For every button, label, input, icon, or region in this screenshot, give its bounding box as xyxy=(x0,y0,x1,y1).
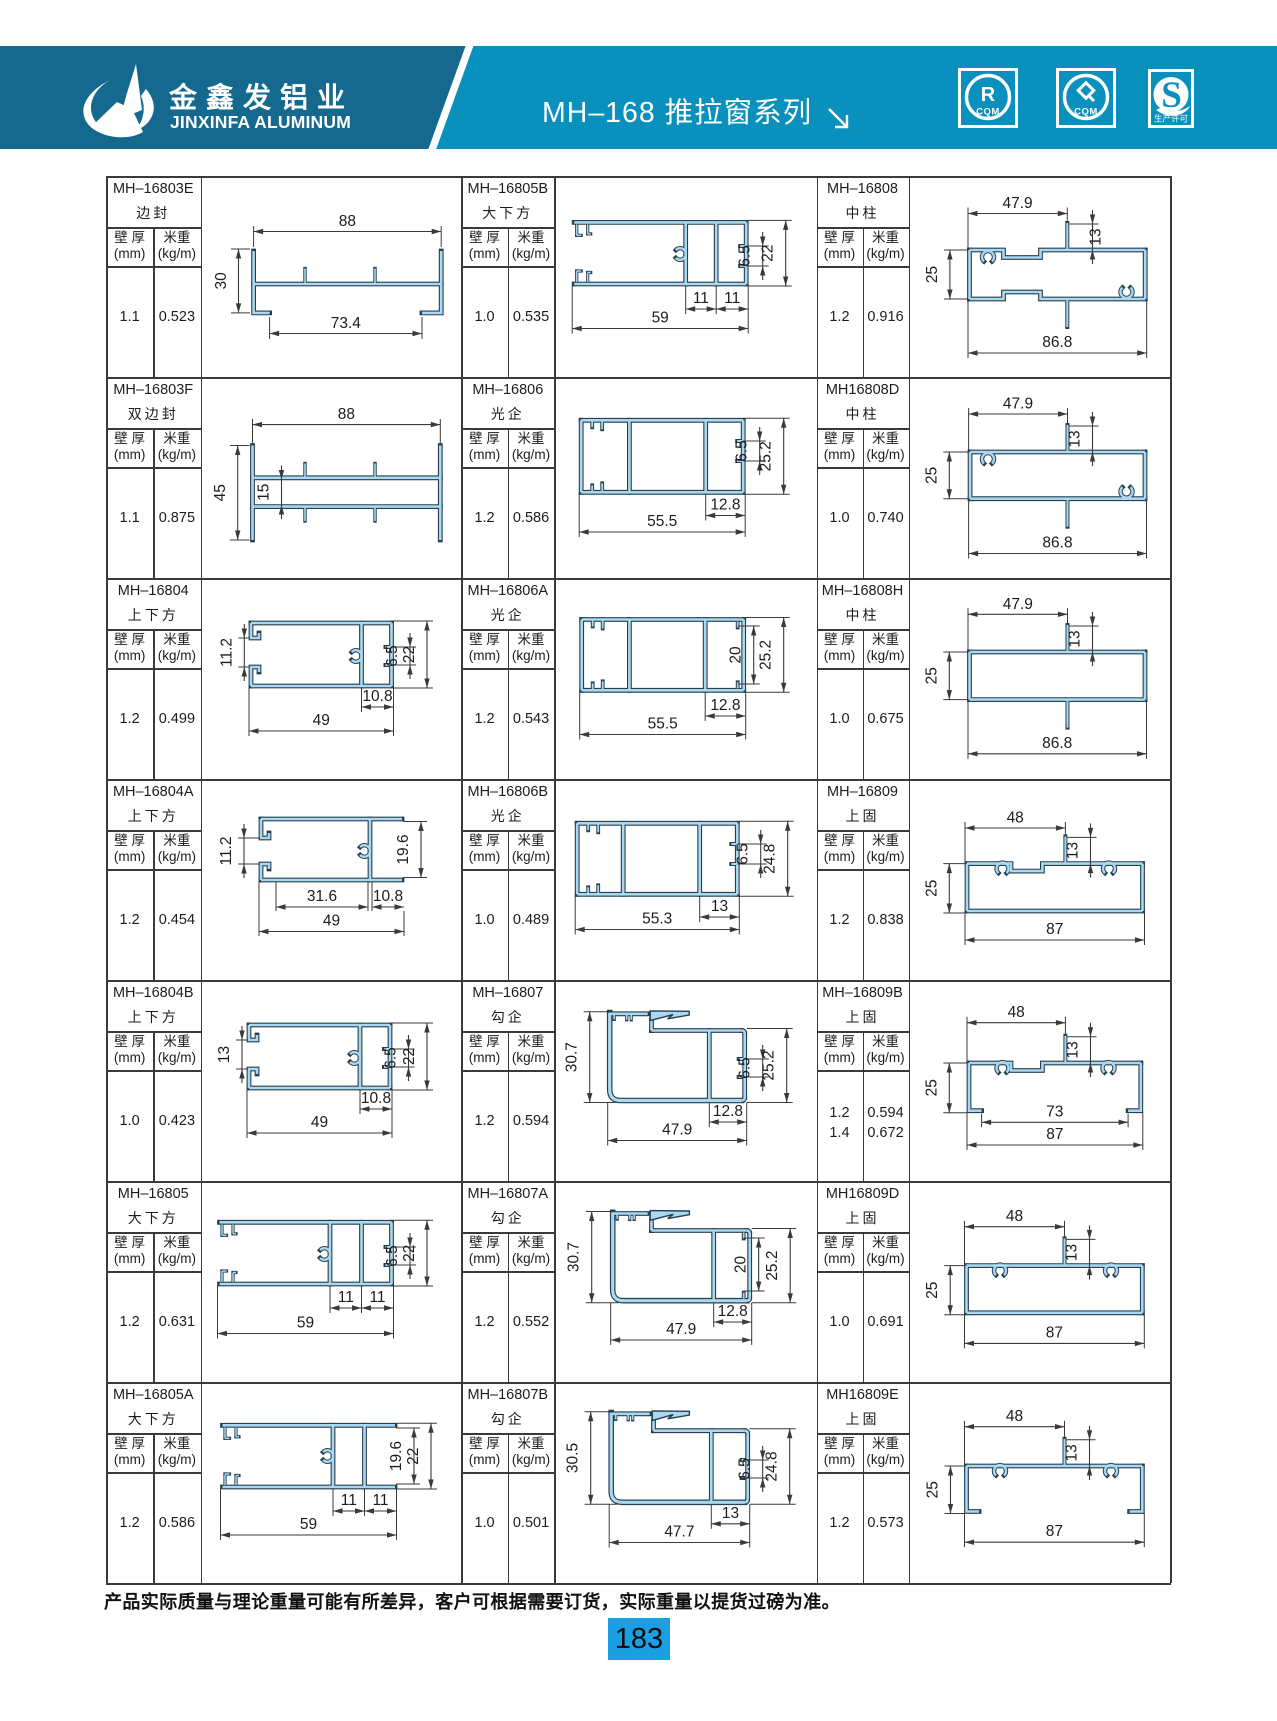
svg-text:87: 87 xyxy=(1045,1523,1062,1540)
svg-text:22: 22 xyxy=(401,646,418,663)
svg-text:6.5: 6.5 xyxy=(734,440,751,462)
svg-text:22: 22 xyxy=(760,245,777,262)
svg-text:11.2: 11.2 xyxy=(218,638,235,667)
svg-text:R: R xyxy=(981,84,996,106)
svg-text:30.7: 30.7 xyxy=(566,1242,583,1272)
svg-text:88: 88 xyxy=(338,406,355,423)
svg-text:47.9: 47.9 xyxy=(1002,195,1032,212)
svg-text:6.5: 6.5 xyxy=(737,1458,754,1480)
svg-text:30.5: 30.5 xyxy=(565,1443,582,1473)
svg-text:55.3: 55.3 xyxy=(642,910,672,927)
svg-text:48: 48 xyxy=(1006,810,1023,827)
svg-text:11: 11 xyxy=(372,1492,388,1509)
svg-text:47.9: 47.9 xyxy=(666,1321,696,1338)
svg-text:生产许可: 生产许可 xyxy=(1154,114,1189,124)
svg-text:59: 59 xyxy=(297,1314,314,1331)
svg-text:30: 30 xyxy=(213,272,230,289)
svg-text:47.7: 47.7 xyxy=(665,1523,695,1540)
svg-text:12.8: 12.8 xyxy=(713,1103,743,1120)
svg-text:25.2: 25.2 xyxy=(761,1050,778,1080)
svg-text:CQM: CQM xyxy=(976,107,1000,118)
svg-text:6.5: 6.5 xyxy=(737,1057,754,1079)
svg-text:24.8: 24.8 xyxy=(762,844,779,874)
svg-text:13: 13 xyxy=(216,1046,233,1063)
svg-text:22: 22 xyxy=(401,1048,418,1065)
svg-text:19.6: 19.6 xyxy=(395,834,412,864)
svg-text:13: 13 xyxy=(711,898,728,915)
svg-text:55.5: 55.5 xyxy=(648,715,678,732)
svg-text:48: 48 xyxy=(1005,1208,1022,1225)
svg-text:73.4: 73.4 xyxy=(331,315,362,332)
svg-text:13: 13 xyxy=(1063,1444,1080,1461)
svg-text:15: 15 xyxy=(255,484,272,501)
svg-text:13: 13 xyxy=(1066,630,1083,647)
svg-text:59: 59 xyxy=(300,1516,317,1533)
svg-text:25: 25 xyxy=(924,1481,941,1498)
svg-text:金鑫发铝业: 金鑫发铝业 xyxy=(168,81,354,113)
svg-text:12.8: 12.8 xyxy=(718,1303,748,1320)
svg-text:11.2: 11.2 xyxy=(218,837,235,866)
svg-text:22: 22 xyxy=(405,1448,422,1465)
svg-text:30.7: 30.7 xyxy=(564,1042,581,1072)
svg-text:25: 25 xyxy=(924,1282,941,1299)
svg-text:48: 48 xyxy=(1007,1004,1024,1021)
svg-text:13: 13 xyxy=(1064,842,1081,859)
svg-text:25.2: 25.2 xyxy=(764,1251,781,1281)
svg-text:10.8: 10.8 xyxy=(362,688,392,705)
svg-text:25: 25 xyxy=(923,1079,940,1096)
svg-text:6.5: 6.5 xyxy=(735,843,752,865)
svg-text:45: 45 xyxy=(212,484,229,501)
svg-text:6.5: 6.5 xyxy=(382,1047,399,1069)
svg-text:86.8: 86.8 xyxy=(1042,735,1072,752)
svg-text:87: 87 xyxy=(1046,1126,1063,1143)
svg-text:47.9: 47.9 xyxy=(1002,596,1032,613)
svg-text:11: 11 xyxy=(341,1492,357,1509)
svg-text:25: 25 xyxy=(923,880,940,897)
svg-text:24.8: 24.8 xyxy=(764,1451,781,1481)
svg-text:11: 11 xyxy=(693,290,709,307)
svg-text:49: 49 xyxy=(313,712,330,729)
svg-text:88: 88 xyxy=(339,213,356,230)
svg-text:6.5: 6.5 xyxy=(384,645,401,667)
svg-text:19.6: 19.6 xyxy=(388,1441,405,1471)
svg-text:6.5: 6.5 xyxy=(737,245,754,267)
svg-text:CQM: CQM xyxy=(1074,107,1098,118)
svg-text:6.5: 6.5 xyxy=(384,1245,401,1267)
svg-text:13: 13 xyxy=(1087,228,1104,245)
svg-text:22: 22 xyxy=(401,1245,418,1262)
svg-text:MH–168 推拉窗系列: MH–168 推拉窗系列 xyxy=(542,97,812,129)
svg-text:59: 59 xyxy=(652,309,669,326)
svg-text:12.8: 12.8 xyxy=(711,496,741,513)
svg-text:JINXINFA ALUMINUM: JINXINFA ALUMINUM xyxy=(170,112,351,132)
svg-text:73: 73 xyxy=(1046,1103,1063,1120)
svg-text:11: 11 xyxy=(724,290,740,307)
svg-text:47.9: 47.9 xyxy=(662,1121,692,1138)
svg-text:11: 11 xyxy=(338,1289,354,1306)
svg-text:25.2: 25.2 xyxy=(758,441,775,471)
svg-text:25: 25 xyxy=(923,667,940,684)
svg-text:48: 48 xyxy=(1005,1408,1022,1425)
svg-text:20: 20 xyxy=(728,646,745,663)
svg-text:87: 87 xyxy=(1045,1324,1062,1341)
svg-text:10.8: 10.8 xyxy=(361,1090,391,1107)
svg-text:10.8: 10.8 xyxy=(373,888,403,905)
svg-text:13: 13 xyxy=(1063,1244,1080,1261)
svg-text:S: S xyxy=(1161,75,1182,116)
svg-text:47.9: 47.9 xyxy=(1002,396,1032,413)
svg-text:86.8: 86.8 xyxy=(1042,535,1072,552)
svg-text:25: 25 xyxy=(923,467,940,484)
svg-text:49: 49 xyxy=(323,912,340,929)
svg-text:49: 49 xyxy=(311,1114,328,1131)
svg-text:25.2: 25.2 xyxy=(758,640,775,670)
svg-text:12.8: 12.8 xyxy=(711,697,741,714)
svg-text:11: 11 xyxy=(369,1289,385,1306)
svg-text:86.8: 86.8 xyxy=(1042,334,1072,351)
svg-text:25: 25 xyxy=(923,266,940,283)
svg-text:55.5: 55.5 xyxy=(647,513,677,530)
svg-text:13: 13 xyxy=(722,1505,739,1522)
svg-text:20: 20 xyxy=(733,1256,750,1273)
svg-text:13: 13 xyxy=(1066,430,1083,447)
svg-text:31.6: 31.6 xyxy=(307,888,337,905)
svg-text:87: 87 xyxy=(1046,921,1063,938)
svg-text:13: 13 xyxy=(1064,1041,1081,1058)
